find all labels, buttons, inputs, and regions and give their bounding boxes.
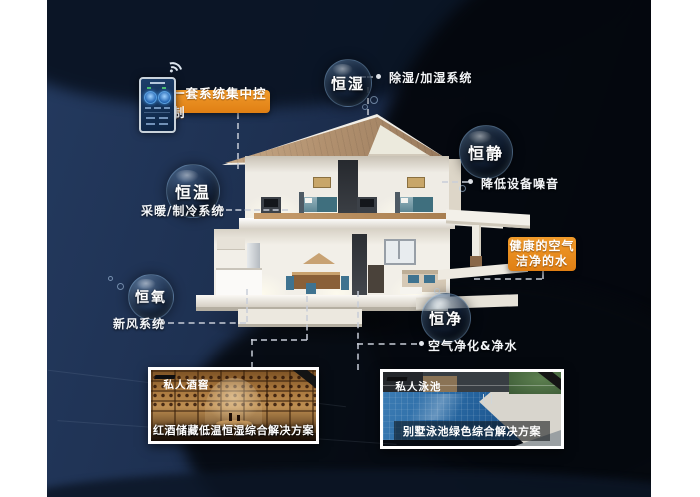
annotation-freshair: 新风系统 (113, 315, 165, 332)
front-step-slab (238, 309, 362, 327)
dining-chair (306, 283, 316, 294)
connector-dot (419, 341, 424, 346)
annotation-heating: 采暖/制冷系统 (141, 202, 224, 219)
annotation-noise: 降低设备噪音 (481, 175, 559, 192)
bubble-label: 恒静 (468, 140, 504, 164)
card-tag: 私人酒窖 (155, 375, 176, 379)
pool-ladder (483, 394, 492, 404)
card-caption: 别墅泳池绿色综合解决方案 (394, 421, 550, 441)
connector-winecellar-drop (306, 296, 308, 340)
panel-indicator (162, 87, 166, 89)
card-caption: 红酒储藏低温恒湿综合解决方案 (151, 422, 316, 438)
wine-cellar-card: 私人酒窖 红酒储藏低温恒湿综合解决方案 (148, 367, 319, 444)
mini-bubble (362, 104, 368, 110)
dining-chair (286, 276, 294, 290)
bubble-constant-humidity: 恒湿 (324, 59, 372, 107)
upper-hallway-opening (338, 160, 358, 218)
health-callout: 健康的空气 洁净的水 (508, 237, 576, 271)
control-system-label: 一套系统集中控制 (172, 83, 270, 121)
dining-chair (341, 276, 349, 290)
bubble-constant-quiet: 恒静 (459, 125, 513, 179)
kitchen-counter (216, 268, 262, 298)
connector-freshair (168, 322, 246, 324)
dining-table (292, 272, 340, 289)
mini-bubble (117, 283, 124, 290)
health-callout-line1: 健康的空气 (509, 239, 574, 254)
kitchen-upper-cabinet (217, 237, 245, 250)
pool-card: 私人泳池 别墅泳池绿色综合解决方案 (380, 369, 564, 449)
coffee-table (400, 287, 422, 294)
connector-health-drop (542, 271, 544, 279)
annotation-dehumidify: 除湿/加湿系统 (389, 69, 472, 86)
control-system-callout: 一套系统集中控制 (172, 90, 270, 113)
bubble-label: 恒温 (175, 179, 211, 203)
wall-art (407, 177, 425, 188)
bubble-label: 恒净 (429, 308, 463, 329)
terrace-column-base (470, 256, 482, 268)
wood-floor-strip (254, 213, 446, 219)
living-room-window (384, 239, 416, 265)
panel-title-bar (150, 82, 165, 84)
tv-screen (360, 199, 374, 207)
connector-dot (468, 179, 473, 184)
floor-slab (239, 218, 455, 229)
smart-control-panel (139, 77, 176, 133)
connector-winecellar (251, 339, 307, 341)
health-callout-line2: 洁净的水 (516, 254, 568, 269)
lower-hallway-opening (352, 234, 367, 296)
card-tag: 私人泳池 (387, 377, 408, 381)
annotation-purify: 空气净化&净水 (428, 337, 517, 354)
mini-bubble (370, 96, 378, 104)
connector-purify (357, 343, 417, 345)
panel-dial (144, 91, 157, 104)
connector-pool-drop (357, 291, 359, 370)
mini-bubble (108, 276, 113, 281)
connector-winecellar-drop2 (251, 339, 253, 368)
panel-dial (158, 91, 171, 104)
connector-freshair-rise (246, 289, 248, 322)
bed (299, 192, 337, 214)
connector-dot (376, 74, 381, 79)
connector-health (474, 278, 542, 280)
mini-bubble (459, 185, 466, 192)
connector-noise (442, 181, 468, 183)
bubble-constant-oxygen: 恒氧 (128, 274, 174, 320)
wall-art (313, 177, 331, 188)
tv-cabinet (368, 265, 384, 293)
bubble-constant-purity: 恒净 (421, 293, 471, 343)
connector-heating (226, 209, 288, 211)
bubble-label: 恒氧 (135, 287, 167, 307)
connector-control-drop (237, 113, 239, 169)
bubble-label: 恒湿 (331, 73, 365, 94)
water-reflection (401, 394, 481, 420)
panel-indicator (147, 87, 151, 89)
tv-screen (264, 199, 278, 207)
bed (395, 192, 433, 214)
poster-canvas: 恒湿 恒静 恒温 恒氧 恒净 除湿/加湿系统 降低设备噪音 采暖/制冷系统 新风… (0, 0, 700, 497)
terrace-column (472, 225, 481, 258)
